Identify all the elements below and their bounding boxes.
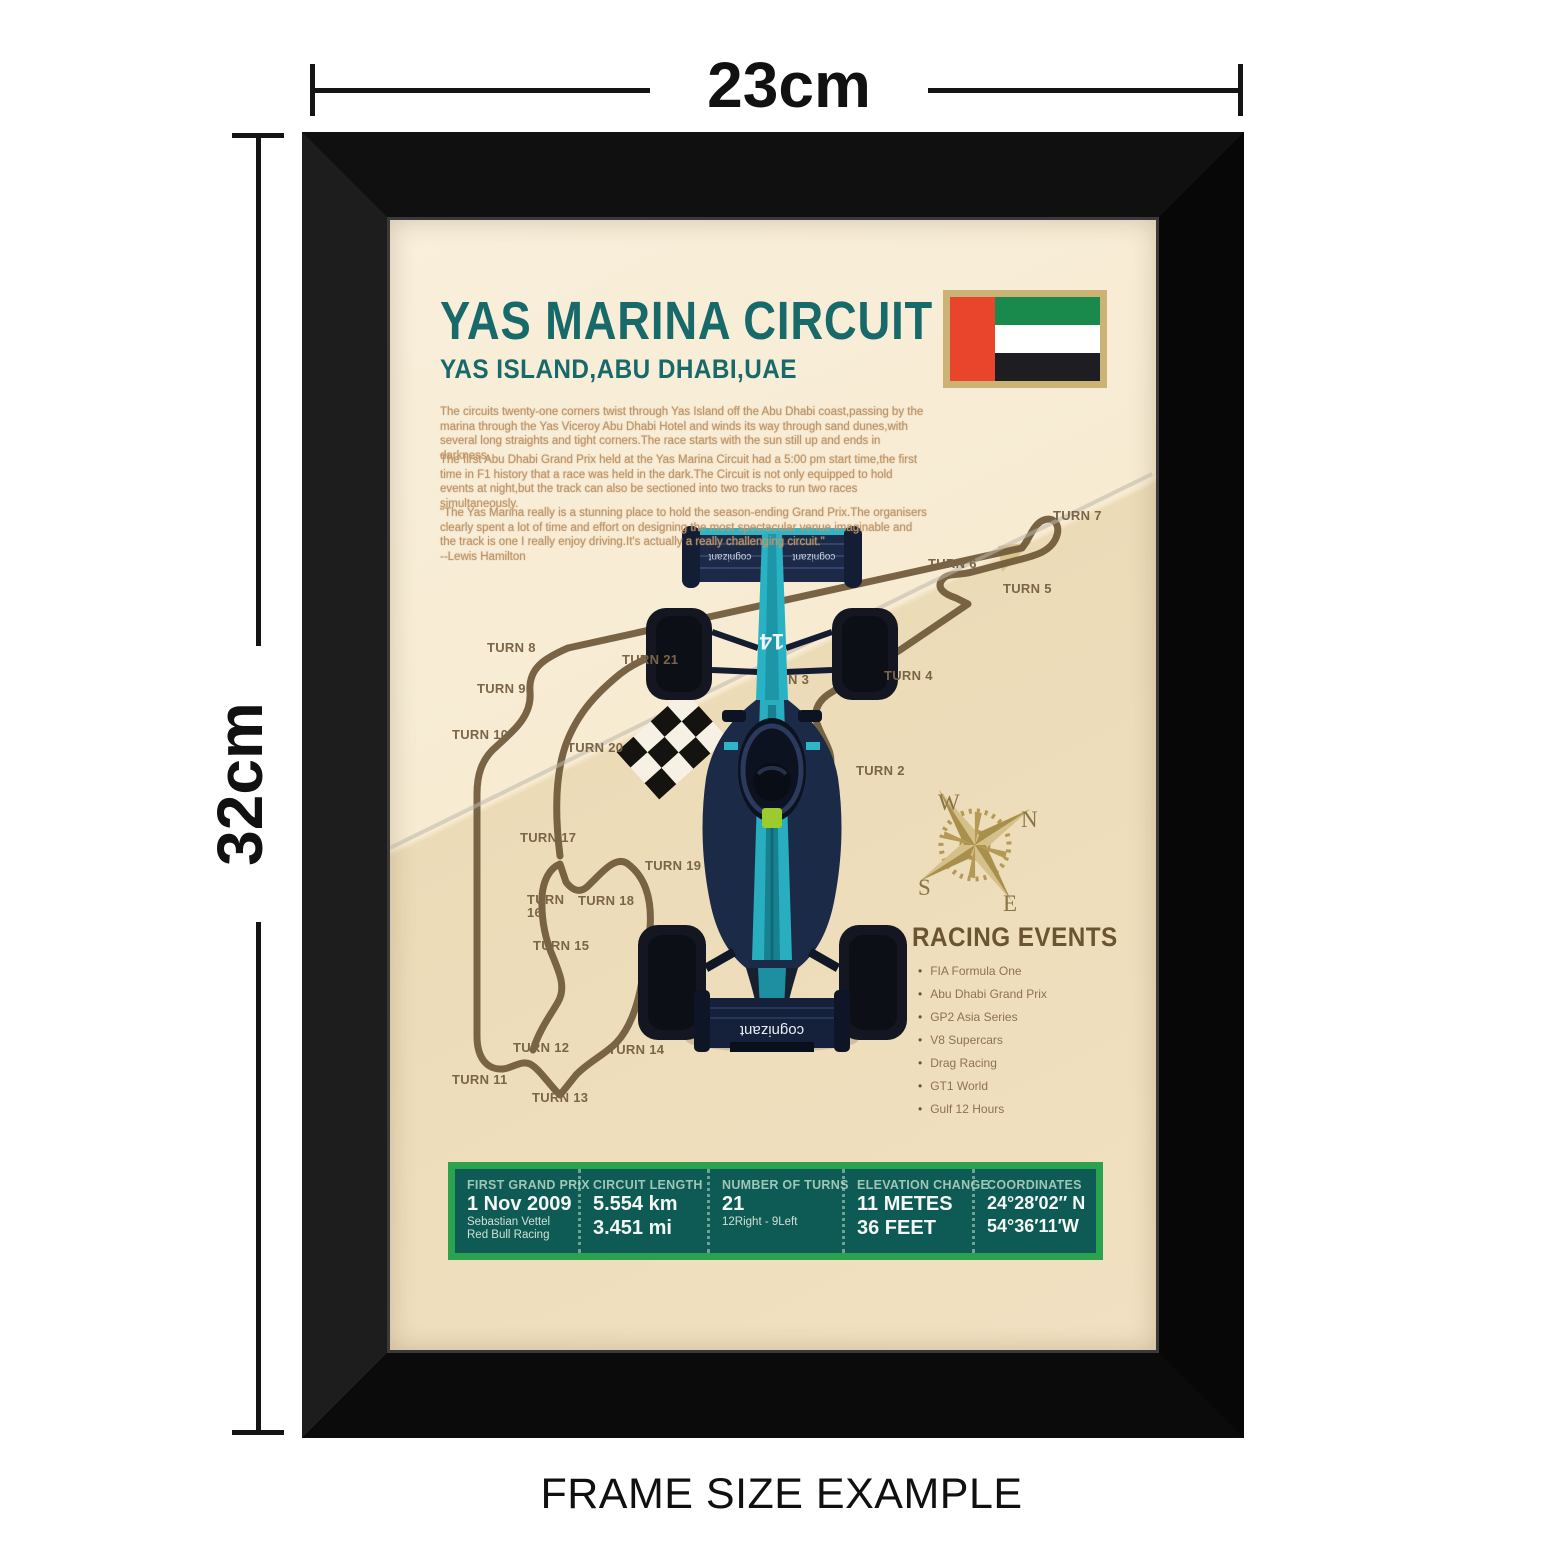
turn-label-21: TURN 21: [622, 652, 678, 667]
car-number: 14: [759, 629, 784, 654]
turn-label-12: TURN 12: [513, 1040, 569, 1055]
uae-flag-white-stripe: [995, 325, 1100, 353]
height-dimension-tick-top: [232, 133, 284, 138]
rear-wing-sponsor: cognizant: [739, 1022, 804, 1039]
uae-flag-black-stripe: [995, 353, 1100, 381]
turn-label-8: TURN 8: [487, 640, 536, 655]
turn-label-15: TURN 15: [533, 938, 589, 953]
intro-paragraph-2: The first Abu Dhabi Grand Prix held at t…: [440, 453, 928, 511]
racing-event-item: Drag Racing: [918, 1056, 997, 1070]
turn-label-6: TURN 6: [928, 556, 977, 571]
stat-value: 5.554 km: [593, 1192, 707, 1216]
turn-label-10: TURN 10: [452, 727, 508, 742]
stat-value: 3.451 mi: [593, 1216, 707, 1240]
turn-label-7: TURN 7: [1053, 508, 1102, 523]
compass-rose: W N S E: [890, 765, 1060, 945]
width-dimension-label: 23cm: [650, 48, 928, 122]
stat-sub: Red Bull Racing: [467, 1229, 578, 1242]
width-dimension-line-left: [312, 88, 650, 93]
stat-elevation-change: ELEVATION CHANGE 11 METES 36 FEET: [842, 1169, 972, 1253]
picture-frame: TURN 7 TURN 6 TURN 5 TURN 8 TURN 21 TURN…: [302, 132, 1244, 1438]
width-dimension-line-right: [928, 88, 1242, 93]
frame-size-caption: FRAME SIZE EXAMPLE: [0, 1470, 1563, 1519]
turn-label-11: TURN 11: [452, 1072, 508, 1087]
racing-event-item: Gulf 12 Hours: [918, 1102, 1004, 1116]
turn-label-9: TURN 9: [477, 681, 526, 696]
stat-value: 21: [722, 1192, 842, 1216]
turn-label-3: N 3: [788, 672, 809, 687]
turn-label-18: TURN 18: [578, 893, 634, 908]
uae-flag-green-stripe: [995, 297, 1100, 325]
racing-event-item: V8 Supercars: [918, 1033, 1003, 1047]
turn-label-13: TURN 13: [532, 1090, 588, 1105]
compass-letter-w: W: [938, 790, 960, 815]
circuit-poster: TURN 7 TURN 6 TURN 5 TURN 8 TURN 21 TURN…: [390, 220, 1156, 1350]
lime-accent: [762, 808, 782, 828]
stat-sub: Sebastian Vettel: [467, 1216, 578, 1229]
track-left-bottom-marina: [477, 648, 650, 1095]
stat-label: FIRST GRAND PRIX: [467, 1178, 578, 1192]
height-dimension-label: 32cm: [203, 702, 277, 866]
stat-coordinates: COORDINATES 24°28′02″ N 54°36′11′W: [972, 1169, 1096, 1253]
stat-value: 24°28′02″ N: [987, 1192, 1096, 1215]
turn-label-17: TURN 17: [520, 830, 576, 845]
racing-events-heading: RACING EVENTS: [912, 922, 1118, 953]
width-dimension-tick-left: [310, 64, 315, 116]
circuit-stats-bar: FIRST GRAND PRIX 1 Nov 2009 Sebastian Ve…: [448, 1162, 1103, 1260]
stat-first-grand-prix: FIRST GRAND PRIX 1 Nov 2009 Sebastian Ve…: [455, 1169, 578, 1253]
racing-event-item: Abu Dhabi Grand Prix: [918, 987, 1047, 1001]
turn-label-20: TURN 20: [567, 740, 623, 755]
turn-label-14: TURN 14: [608, 1042, 664, 1057]
stat-label: NUMBER OF TURNS: [722, 1178, 842, 1192]
stat-label: CIRCUIT LENGTH: [593, 1178, 707, 1192]
stat-number-of-turns: NUMBER OF TURNS 21 12Right - 9Left: [707, 1169, 842, 1253]
mirror-left: [724, 742, 738, 750]
stat-value: 11 METES: [857, 1192, 972, 1216]
racing-event-item: GT1 World: [918, 1079, 988, 1093]
compass-letter-n: N: [1021, 807, 1038, 832]
stat-circuit-length: CIRCUIT LENGTH 5.554 km 3.451 mi: [578, 1169, 707, 1253]
compass-letter-s: S: [918, 875, 931, 900]
uae-flag: [943, 290, 1107, 388]
stat-label: ELEVATION CHANGE: [857, 1178, 972, 1192]
racing-event-item: FIA Formula One: [918, 964, 1022, 978]
mirror-right: [806, 742, 820, 750]
stat-label: COORDINATES: [987, 1178, 1096, 1192]
height-dimension-tick-bottom: [232, 1430, 284, 1435]
turn-label-5: TURN 5: [1003, 581, 1052, 596]
turn-label-2: TURN 2: [856, 763, 905, 778]
height-dimension-line-bottom: [256, 922, 261, 1434]
hamilton-quote: "The Yas Marina really is a stunning pla…: [440, 506, 928, 564]
stat-sub: 12Right - 9Left: [722, 1216, 842, 1229]
uae-flag-red-bar: [950, 297, 995, 381]
turn-label-4: TURN 4: [884, 668, 933, 683]
height-dimension-line-top: [256, 136, 261, 646]
stat-value: 1 Nov 2009: [467, 1192, 578, 1216]
stat-value: 36 FEET: [857, 1216, 972, 1240]
width-dimension-tick-right: [1238, 64, 1243, 116]
turn-label-16: TURN 16: [527, 893, 573, 919]
f1-car-illustration: cognizant cognizant 14: [630, 520, 915, 1055]
compass-letter-e: E: [1003, 891, 1017, 916]
racing-event-item: GP2 Asia Series: [918, 1010, 1018, 1024]
turn-label-19: TURN 19: [645, 858, 701, 873]
stat-value: 54°36′11′W: [987, 1215, 1096, 1238]
